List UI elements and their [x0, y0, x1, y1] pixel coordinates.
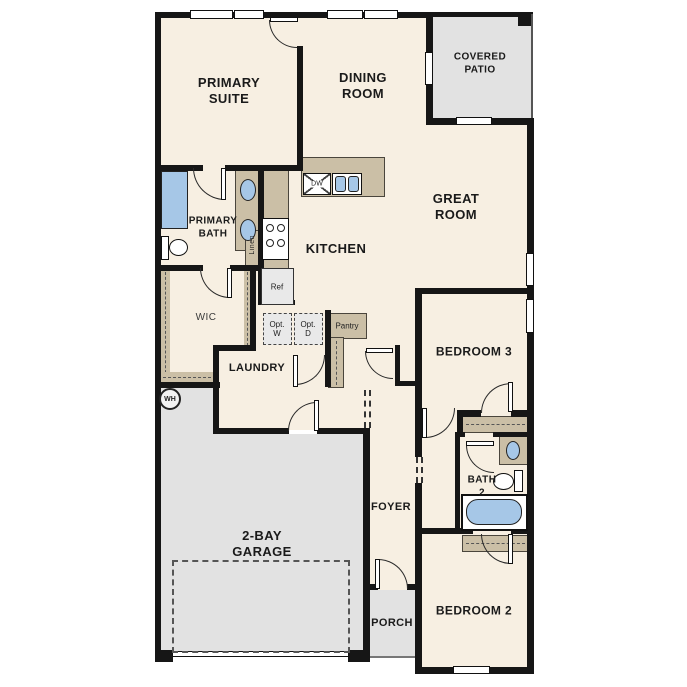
coat-closet-rod: [336, 341, 337, 385]
room-label-bedroom-2: BEDROOM 2: [436, 604, 512, 619]
window: [364, 10, 398, 19]
bath2-toilet-tank: [514, 470, 523, 492]
toilet-tank: [161, 236, 169, 260]
wall: [225, 165, 303, 171]
wall: [213, 345, 219, 434]
dishwasher: DW: [303, 173, 331, 195]
wall: [348, 650, 370, 662]
window: [526, 253, 534, 286]
wic-rod-bottom: [163, 377, 216, 378]
door-leaf: [466, 441, 494, 446]
optional-dryer-label: Opt. D: [300, 320, 315, 338]
water-heater: WH: [159, 388, 181, 410]
bedroom3-closet-rod: [466, 424, 525, 425]
wall: [158, 382, 220, 388]
wall: [415, 288, 531, 294]
linen-label: Linen: [249, 235, 256, 255]
wall: [297, 46, 303, 171]
door-leaf: [314, 400, 319, 431]
room-label-primary-suite: PRIMARY SUITE: [198, 75, 260, 108]
bath2-sink: [506, 441, 520, 460]
door-leaf: [270, 17, 298, 22]
wall: [155, 12, 161, 662]
burner-icon: [277, 224, 285, 232]
wall: [250, 268, 256, 350]
patio-edge: [531, 14, 533, 118]
sink-basin: [348, 176, 359, 192]
door-leaf: [508, 382, 513, 412]
burner-icon: [277, 239, 285, 247]
wall: [493, 432, 531, 437]
patio-sliding-door: [456, 117, 492, 125]
room-label-covered-patio: COVERED PATIO: [454, 52, 506, 77]
room-label-bath-2: BATH 2: [468, 475, 497, 500]
cased-opening: [416, 457, 418, 483]
front-door-leaf: [375, 559, 380, 589]
room-label-foyer: FOYER: [371, 501, 411, 515]
wall: [158, 265, 203, 271]
window: [425, 52, 433, 85]
water-heater-label: WH: [164, 396, 176, 403]
pantry-label: Pantry: [335, 321, 358, 330]
window: [526, 299, 534, 333]
wall: [415, 483, 422, 674]
porch-edge: [369, 656, 416, 658]
wic-rod-right: [247, 272, 248, 346]
room-label-garage: 2-BAY GARAGE: [232, 528, 291, 561]
cooktop: [262, 218, 289, 260]
floor-plan: DW Ref Opt. W Opt. D WH PRIMARY SUITE DI…: [0, 0, 687, 687]
door-leaf: [221, 168, 226, 200]
wall: [155, 650, 173, 662]
wall: [395, 345, 400, 385]
window: [190, 10, 233, 19]
wic-rod-left: [165, 272, 166, 378]
door-leaf: [508, 534, 513, 564]
wall: [213, 428, 289, 434]
wall: [317, 428, 367, 434]
wall: [325, 310, 331, 387]
door-leaf: [422, 408, 427, 438]
cased-opening: [421, 457, 423, 483]
wall: [415, 288, 422, 457]
refrigerator-label: Ref: [271, 282, 283, 291]
burner-icon: [266, 239, 274, 247]
shower: [161, 171, 188, 229]
bathtub: [466, 499, 522, 525]
room-label-great-room: GREAT ROOM: [433, 191, 480, 224]
window: [327, 10, 363, 19]
room-label-laundry: LAUNDRY: [229, 362, 285, 376]
door-leaf: [227, 268, 232, 298]
toilet-bowl: [169, 239, 188, 256]
garage-door-outline: [172, 560, 350, 653]
room-label-wic: WIC: [196, 312, 217, 325]
wall: [213, 345, 256, 351]
cased-opening: [364, 390, 366, 428]
dishwasher-label: DW: [310, 181, 324, 188]
wall: [363, 428, 370, 657]
wall: [455, 432, 460, 528]
door-leaf: [293, 355, 298, 387]
room-label-dining-room: DINING ROOM: [339, 70, 387, 103]
burner-icon: [266, 224, 274, 232]
window: [234, 10, 264, 19]
wall: [407, 584, 417, 590]
wall: [527, 118, 534, 674]
room-label-porch: PORCH: [371, 617, 413, 631]
room-label-kitchen: KITCHEN: [306, 241, 367, 257]
vanity-sink: [240, 179, 256, 201]
optional-washer-label: Opt. W: [269, 320, 284, 338]
room-label-primary-bath: PRIMARY BATH: [189, 216, 238, 241]
room-label-bedroom-3: BEDROOM 3: [436, 345, 512, 360]
door-leaf: [366, 348, 393, 353]
wall: [511, 410, 531, 417]
cased-opening: [369, 390, 371, 428]
window: [453, 666, 490, 674]
sink-basin: [335, 176, 346, 192]
